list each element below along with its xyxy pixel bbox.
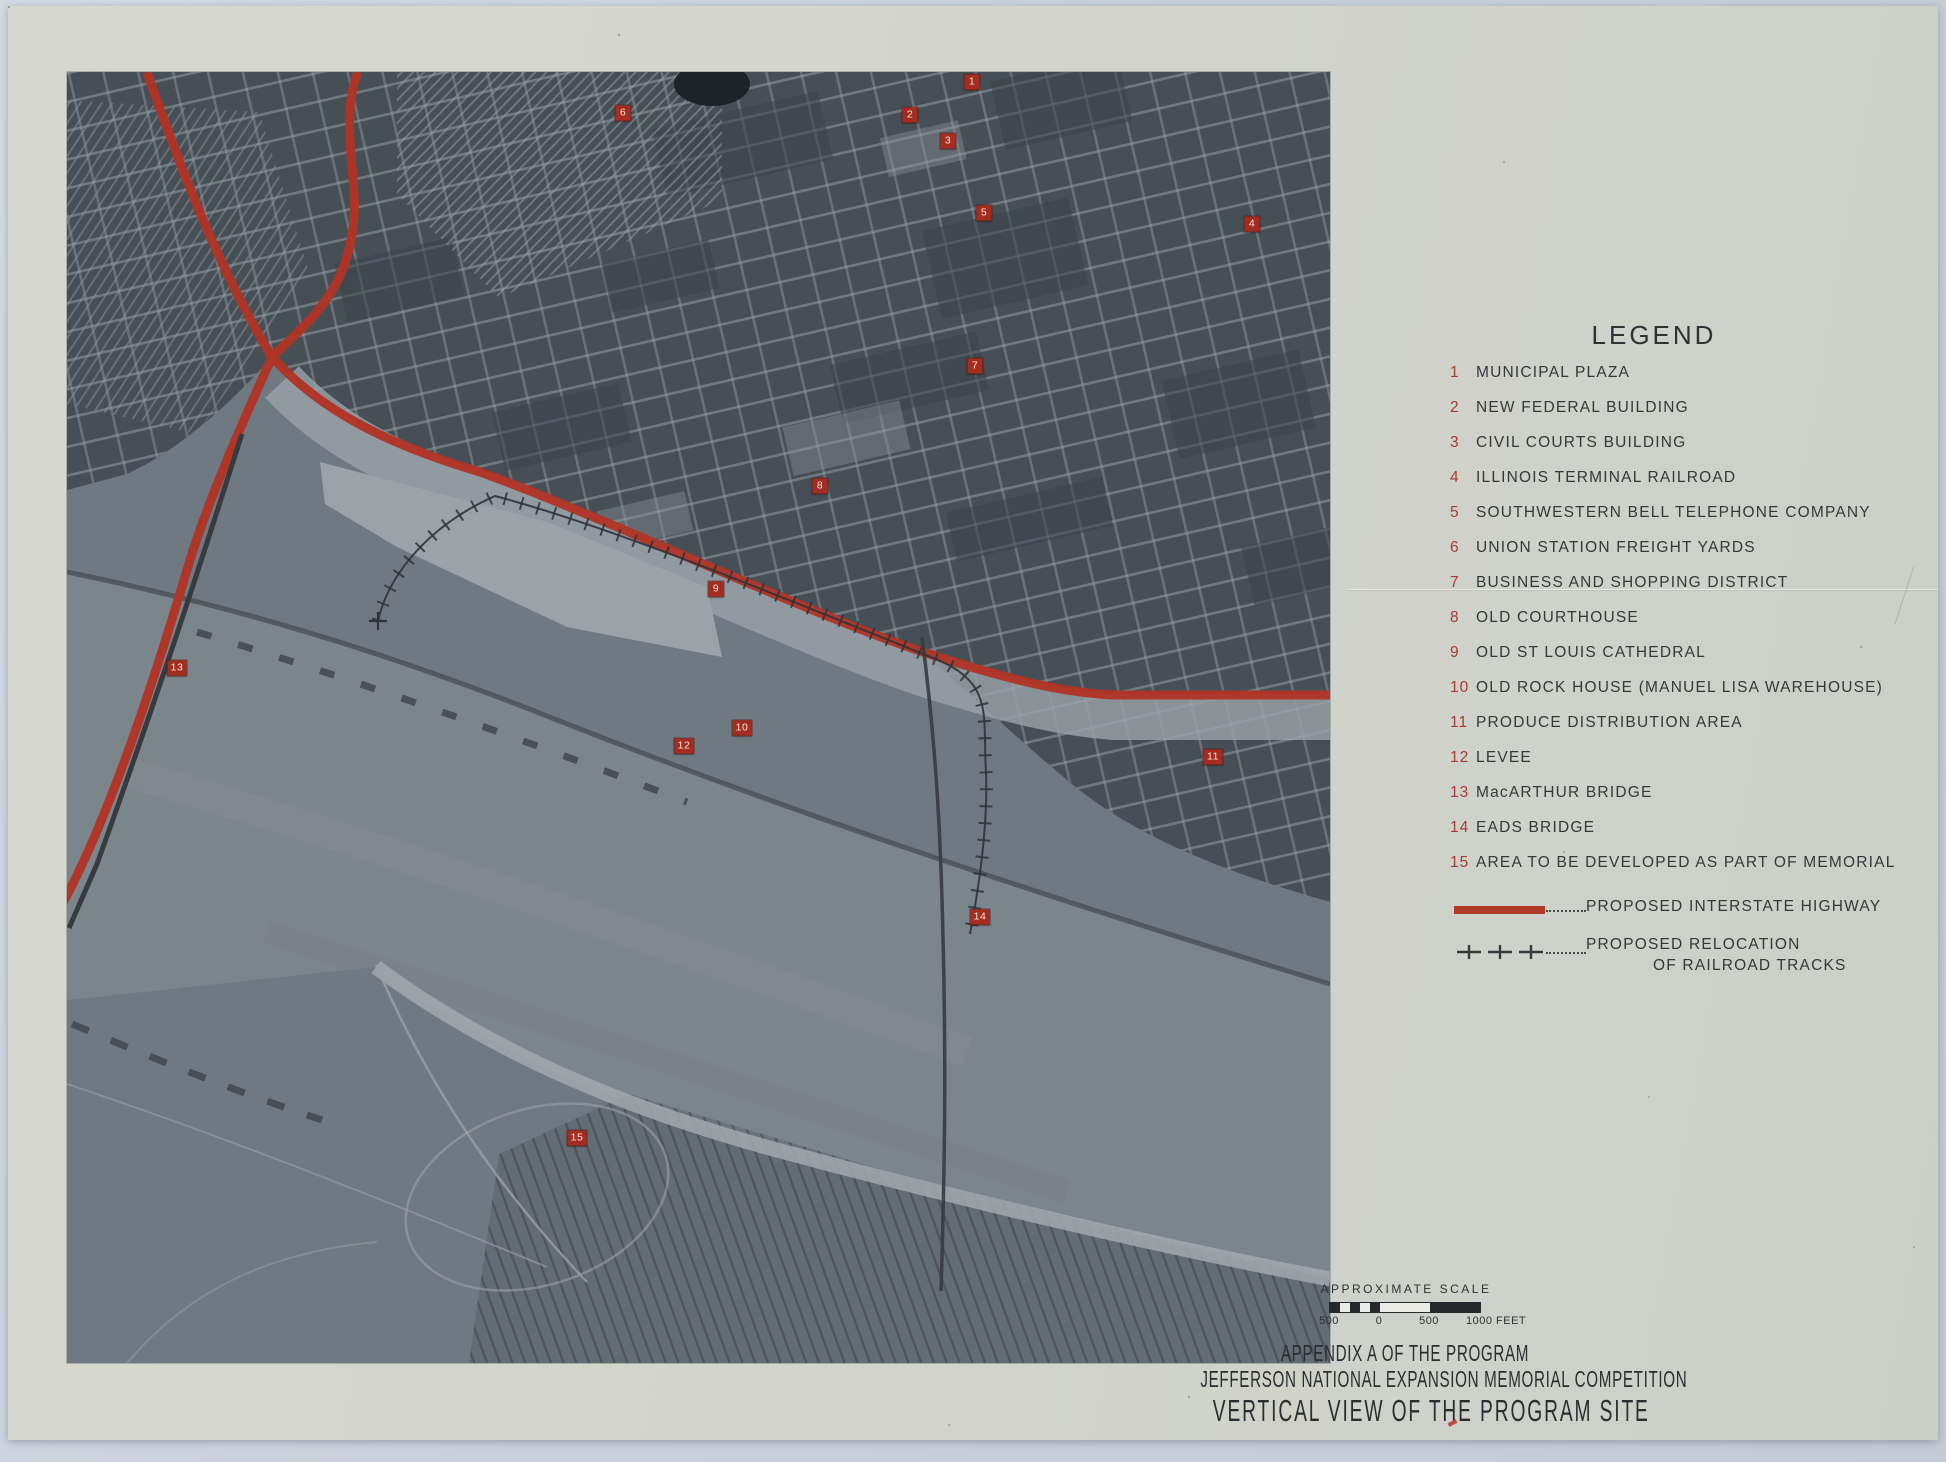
scale-label: 500 [1319,1315,1339,1327]
legend-item: 15AREA TO BE DEVELOPED AS PART OF MEMORI… [1448,854,1918,889]
scale-caption: APPROXIMATE SCALE [1306,1282,1506,1296]
title-competition: JEFFERSON NATIONAL EXPANSION MEMORIAL CO… [1200,1366,1609,1392]
map-marker-3: 3 [941,134,956,149]
dust-specks [8,6,10,8]
map-marker-12: 12 [675,739,694,754]
legend-item-label: LEVEE [1476,749,1532,766]
legend-item-number: 10 [1448,679,1476,697]
legend-item: 12LEVEE [1448,749,1918,784]
legend-items: 1MUNICIPAL PLAZA2NEW FEDERAL BUILDING3CI… [1448,364,1918,889]
legend-item-number: 1 [1448,364,1476,382]
map-marker-7: 7 [968,359,983,374]
legend-item: 3CIVIL COURTS BUILDING [1448,434,1918,469]
leader-dots [1546,950,1586,954]
title-block: APPENDIX A OF THE PROGRAM JEFFERSON NATI… [1095,1340,1715,1430]
legend-item-number: 14 [1448,819,1476,837]
map-marker-6: 6 [616,106,631,121]
legend-item-label: CIVIL COURTS BUILDING [1476,434,1686,451]
map-marker-4: 4 [1245,217,1260,232]
highway-symbol-swatch [1454,906,1545,914]
map-marker-8: 8 [813,479,828,494]
paper-sheet: 123456789101112131415 LEGEND 1MUNICIPAL … [8,6,1938,1440]
legend-item-number: 11 [1448,714,1476,732]
legend-item-label: ILLINOIS TERMINAL RAILROAD [1476,469,1736,486]
legend-item-label: MUNICIPAL PLAZA [1476,364,1630,381]
legend-item: 6UNION STATION FREIGHT YARDS [1448,539,1918,574]
paper-crease [1348,589,1938,590]
legend-item-label: OLD COURTHOUSE [1476,609,1639,626]
aerial-photo: 123456789101112131415 [67,72,1330,1363]
railroad-symbol-label-line2: OF RAILROAD TRACKS [1653,957,1847,975]
map-marker-15: 15 [568,1131,587,1146]
scanned-map-sheet: 123456789101112131415 LEGEND 1MUNICIPAL … [0,0,1946,1462]
page-title: VERTICAL VIEW OF THE PROGRAM SITE [1213,1392,1597,1430]
legend-item: 2NEW FEDERAL BUILDING [1448,399,1918,434]
legend-item-number: 13 [1448,784,1476,802]
legend-item: 11PRODUCE DISTRIBUTION AREA [1448,714,1918,749]
legend-item-number: 2 [1448,399,1476,417]
scale-label: 1000 FEET [1466,1315,1526,1327]
map-marker-11: 11 [1204,750,1223,765]
legend-item: 1MUNICIPAL PLAZA [1448,364,1918,399]
legend-item-number: 15 [1448,854,1476,872]
railroad-symbol [1455,942,1547,962]
legend-item-label: OLD ST LOUIS CATHEDRAL [1476,644,1706,661]
leader-dots [1546,908,1586,912]
highway-symbol-label: PROPOSED INTERSTATE HIGHWAY [1586,898,1881,916]
legend-item-number: 12 [1448,749,1476,767]
map-marker-13: 13 [168,661,187,676]
legend-item-label: MacARTHUR BRIDGE [1476,784,1653,801]
scale-label: 0 [1376,1315,1383,1327]
legend-item-number: 6 [1448,539,1476,557]
title-appendix: APPENDIX A OF THE PROGRAM [1200,1340,1609,1366]
legend-item-number: 3 [1448,434,1476,452]
legend-title: LEGEND [1448,320,1860,351]
legend-item-number: 9 [1448,644,1476,662]
scale-bar [1329,1302,1481,1313]
legend-item-label: UNION STATION FREIGHT YARDS [1476,539,1756,556]
legend-item-label: PRODUCE DISTRIBUTION AREA [1476,714,1743,731]
legend-item: 14EADS BRIDGE [1448,819,1918,854]
legend-item-label: SOUTHWESTERN BELL TELEPHONE COMPANY [1476,504,1871,521]
map-marker-9: 9 [709,582,724,597]
legend-item: 13MacARTHUR BRIDGE [1448,784,1918,819]
legend-item-number: 4 [1448,469,1476,487]
legend-item: 9OLD ST LOUIS CATHEDRAL [1448,644,1918,679]
legend-item-label: AREA TO BE DEVELOPED AS PART OF MEMORIAL [1476,854,1896,871]
legend-item: 4ILLINOIS TERMINAL RAILROAD [1448,469,1918,504]
legend-item-label: OLD ROCK HOUSE (MANUEL LISA WAREHOUSE) [1476,679,1883,696]
legend-item-label: EADS BRIDGE [1476,819,1595,836]
map-marker-14: 14 [971,910,990,925]
railroad-symbol-label-line1: PROPOSED RELOCATION [1586,936,1801,954]
scale-label: 500 [1419,1315,1439,1327]
map-marker-10: 10 [733,721,752,736]
map-marker-5: 5 [977,206,992,221]
map-marker-2: 2 [903,108,918,123]
legend-item-label: NEW FEDERAL BUILDING [1476,399,1689,416]
map-marker-1: 1 [965,75,980,90]
legend-item-number: 5 [1448,504,1476,522]
legend-item: 10OLD ROCK HOUSE (MANUEL LISA WAREHOUSE) [1448,679,1918,714]
legend-item: 5SOUTHWESTERN BELL TELEPHONE COMPANY [1448,504,1918,539]
legend-item: 8OLD COURTHOUSE [1448,609,1918,644]
legend-item: 7BUSINESS AND SHOPPING DISTRICT [1448,574,1918,609]
marker-layer: 123456789101112131415 [67,72,1330,1363]
legend-item-number: 8 [1448,609,1476,627]
